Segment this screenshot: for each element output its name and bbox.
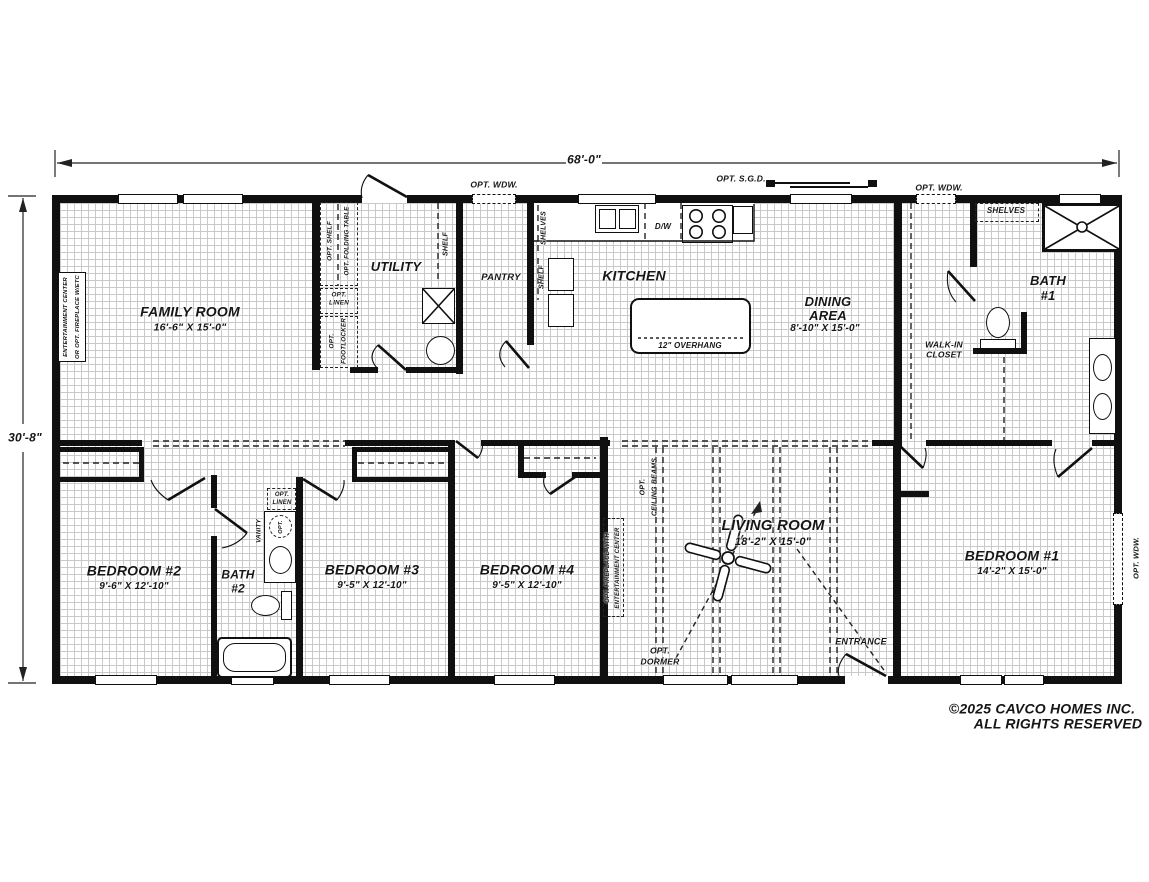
room-label-family: FAMILY ROOM — [140, 305, 240, 320]
wall — [1092, 440, 1122, 446]
wall — [1021, 312, 1027, 354]
wall — [893, 491, 929, 497]
toilet-tank-bath1 — [980, 339, 1016, 349]
room-label-utility: UTILITY — [371, 260, 422, 274]
opt-linen-label: OPT. — [331, 293, 346, 300]
entertainment-center-label2: OR OPT. FIREPLACE W/ETC — [75, 275, 81, 359]
vanity-sink — [269, 546, 292, 574]
wall — [312, 203, 320, 370]
shower — [1042, 203, 1122, 252]
copyright-line1: ©2025 CAVCO HOMES INC. — [949, 702, 1135, 717]
closet-wall — [59, 447, 144, 452]
window — [183, 194, 243, 204]
wall — [926, 440, 1052, 446]
window — [790, 194, 852, 204]
opt-shelf-label: OPT. SHELF — [327, 221, 334, 261]
shelves-label: SHELVES — [541, 211, 548, 245]
window — [329, 675, 390, 685]
room-label-dining2: AREA — [809, 309, 847, 323]
shelf-label: SHELF — [539, 265, 546, 289]
toilet-tank-bath2 — [281, 591, 292, 620]
window — [1004, 675, 1044, 685]
dishwasher-label: D/W — [655, 223, 671, 231]
cabinet — [733, 206, 753, 234]
opt-wdw-label: OPT. WDW. — [470, 181, 517, 190]
wall — [406, 367, 460, 373]
opt-wdw-right-label: OPT. WDW. — [1132, 537, 1141, 579]
opt-wdw-label: OPT. WDW. — [915, 184, 962, 193]
room-label-living: LIVING ROOM — [721, 518, 824, 534]
wall — [448, 440, 455, 676]
wall — [481, 440, 610, 446]
room-size-living: 18'-2" X 15'-0" — [735, 537, 811, 549]
closet-wall — [352, 447, 448, 452]
bathtub-inner — [223, 643, 286, 672]
room-label-kitchen: KITCHEN — [602, 269, 666, 284]
opt-sgd-label: OPT. S.G.D. — [716, 175, 765, 184]
copyright-line2: ALL RIGHTS RESERVED — [974, 717, 1142, 732]
dimension-width-label: 68'-0" — [567, 154, 601, 167]
walk-in-closet-label: WALK-IN — [925, 341, 963, 350]
entrance-label: ENTRANCE — [835, 637, 887, 646]
cabinet — [548, 258, 574, 291]
wall — [872, 440, 894, 446]
opt-fireplace-label: OPT. FIREPLACE WITH — [605, 533, 611, 603]
room-size-bedroom2: 9'-6" X 12'-10" — [99, 582, 169, 593]
opt-ceiling-beams-label: OPT. — [640, 479, 647, 496]
closet-wall — [139, 447, 144, 482]
opt-linen-bath2-label2: LINEN — [273, 500, 292, 506]
optional-window — [1113, 513, 1123, 605]
floor-plan-page: 68'-0" 30'-8" OPT. WDW. OPT. S.G.D. OPT.… — [0, 0, 1149, 882]
opt-dormer-label2: DORMER — [641, 658, 680, 667]
closet-wall — [572, 472, 600, 478]
opt-dormer-label: OPT. — [650, 647, 670, 656]
opt-sink-label: OPT. — [278, 520, 284, 533]
closet-wall — [59, 477, 144, 482]
overhang-label: 12" OVERHANG — [658, 342, 722, 350]
room-size-bedroom3: 9'-5" X 12'-10" — [337, 581, 407, 592]
sink-basin — [599, 209, 616, 229]
water-heater — [422, 288, 455, 324]
opt-footlocker-box — [320, 316, 358, 368]
room-label-pantry: PANTRY — [481, 273, 520, 283]
room-label-bedroom1: BEDROOM #1 — [965, 549, 1060, 564]
room-size-family: 16'-6" X 15'-0" — [154, 322, 227, 333]
walk-in-closet-label2: CLOSET — [926, 351, 962, 360]
wall — [296, 477, 303, 676]
closet-wall — [352, 447, 357, 482]
opt-linen-label2: LINEN — [329, 301, 349, 308]
room-size-bedroom1: 14'-2" X 15'-0" — [977, 567, 1047, 578]
sink-basin — [619, 209, 636, 229]
wall — [893, 440, 901, 676]
sgd-symbol — [766, 180, 877, 187]
room-label-bath1: BATH — [1030, 274, 1066, 288]
opt-linen-bath2-label: OPT. — [275, 492, 289, 498]
toilet-bath2 — [251, 595, 280, 616]
wall — [527, 195, 534, 345]
wall — [456, 195, 463, 374]
window — [494, 675, 555, 685]
wall — [52, 440, 142, 446]
vanity-label: VANITY — [256, 519, 263, 543]
room-label-dining: DINING — [805, 295, 852, 309]
door-leaf — [368, 175, 407, 197]
room-label-bath2-2: #2 — [231, 583, 245, 596]
room-label-bath2: BATH — [221, 569, 254, 582]
window — [663, 675, 728, 685]
optional-window — [916, 194, 956, 204]
room-size-bedroom4: 9'-5" X 12'-10" — [492, 581, 562, 592]
cabinet — [548, 294, 574, 327]
room-size-dining: 8'-10" X 15'-0" — [790, 324, 860, 335]
window — [118, 194, 178, 204]
window — [960, 675, 1002, 685]
wall — [894, 203, 902, 447]
vanity-sink — [1093, 393, 1112, 420]
room-label-bedroom2: BEDROOM #2 — [87, 564, 182, 579]
dimension-height-label: 30'-8" — [8, 432, 42, 445]
vanity-sink — [1093, 354, 1112, 381]
closet-wall — [352, 477, 448, 482]
entertainment-center-label: ENTERTAINMENT CENTER — [63, 277, 69, 357]
room-label-bedroom3: BEDROOM #3 — [325, 563, 420, 578]
window — [95, 675, 157, 685]
opt-fireplace-label2: ENTERTAINMENT CENTER — [615, 527, 621, 608]
wall — [211, 475, 217, 508]
toilet-bath1 — [986, 307, 1010, 338]
opt-ceiling-beams-label2: CEILING BEAMS — [652, 458, 659, 516]
washer — [426, 336, 455, 365]
opt-folding-table-label: OPT. FOLDING TABLE — [344, 206, 351, 275]
window — [578, 194, 656, 204]
wall — [345, 440, 448, 446]
optional-window — [472, 194, 516, 204]
opt-footlocker-label: OPT. — [329, 333, 336, 348]
shelf-label: SHELF — [443, 232, 450, 256]
opt-footlocker-label2: FOOTLOCKER — [341, 318, 348, 364]
shelves-label-bath1: SHELVES — [987, 207, 1025, 215]
range — [682, 205, 733, 243]
closet-wall — [518, 472, 546, 478]
window — [731, 675, 798, 685]
room-label-bedroom4: BEDROOM #4 — [480, 563, 575, 578]
room-label-bath1-2: #1 — [1041, 289, 1056, 303]
